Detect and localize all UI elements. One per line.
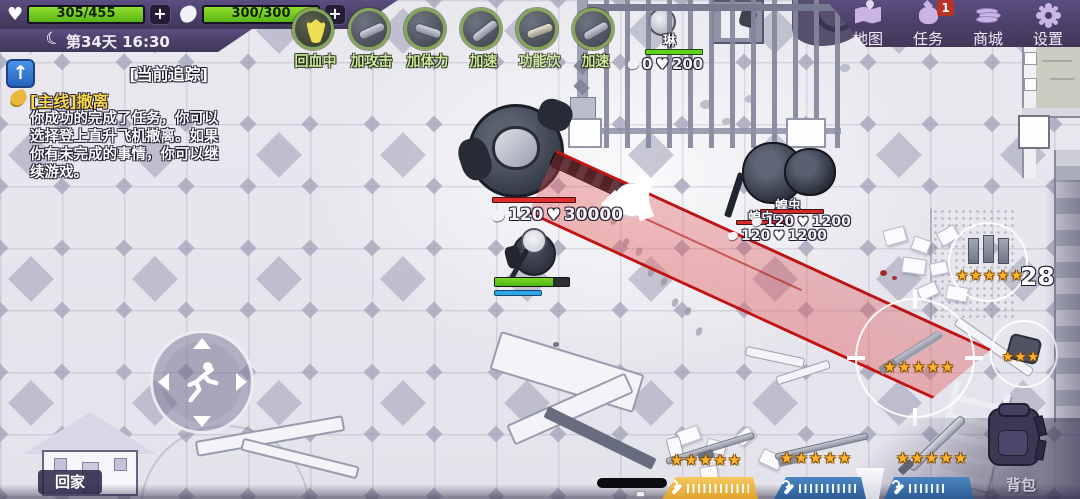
repair-wrench-icon [670,481,683,495]
attack-icon [727,231,739,241]
durability-ticks [799,484,859,493]
pickup-rifle-stars: ★★★★★ [883,358,955,376]
heart-icon: ♥ [773,230,785,243]
blood-splat [892,276,897,280]
menu-label: 任务 [900,28,956,49]
health-bar: 305/455 [27,5,145,24]
house-window [114,458,127,471]
blood-splat [880,270,887,276]
attack-icon [751,217,763,227]
home-label: 回家 [55,473,85,491]
buff-art [357,21,387,42]
top-menu: 地图 1 任务 商城 设置 [840,2,1076,49]
enemy-unit [784,148,836,196]
player-stamina-bar [494,290,542,296]
day-time-label: 第34天 16:30 [66,31,170,52]
menu-label: 设置 [1020,28,1076,49]
buff-art [525,22,555,41]
durability-ticks [909,484,945,493]
run-icon [180,359,226,405]
hotbar: ★★★★★ ★★★★★ ★★★★★ [590,415,990,499]
slot2-durability-bar [774,477,866,499]
speed-buff-icon [460,8,502,50]
heart-icon: ♥ [797,216,809,229]
slot1-durability-bar [662,477,758,499]
joystick-right-arrow [236,373,247,391]
repair-wrench-icon [892,481,905,495]
buff-label: 回血中 [292,51,339,71]
attack-buff-icon [348,8,390,50]
buff-art [470,18,500,44]
buff-label: 加体力 [404,51,451,71]
buff-heal[interactable]: 回血中 [292,8,339,71]
tasks-badge: 1 [937,0,954,16]
wall-box [1024,78,1037,91]
backpack-pocket [998,430,1028,456]
ammo-cylinder [983,235,994,263]
weapon-slot-1[interactable]: ★★★★★ [650,415,760,499]
quest-header: [当前追踪] [80,61,208,85]
quest-collapse-button[interactable]: ↑ [6,59,35,88]
player-hp-fill [495,278,553,286]
buff-bar: 回血中 加攻击 加体力 加速 功能饮 加速 [292,8,619,71]
settings-gear-icon [1040,7,1057,24]
buff-attack[interactable]: 加攻击 [348,8,395,71]
house-roof [24,412,156,454]
buff-speed-2[interactable]: 加速 [572,8,619,71]
durability-ticks [687,484,749,493]
backpack-flap [998,403,1030,417]
menu-shop[interactable]: 商城 [960,2,1016,49]
joystick-up-arrow [193,338,211,349]
joystick-down-arrow [193,416,211,427]
health-heart-icon: ♥ [7,4,23,25]
menu-settings[interactable]: 设置 [1020,2,1076,49]
slot3-stars: ★★★★★ [896,449,968,467]
menu-label: 地图 [840,28,896,49]
joystick-left-arrow [158,373,169,391]
repair-wrench-icon [782,481,795,495]
npc-name: 琳 [663,30,676,49]
fence-top-rail [583,4,841,11]
attack-icon [627,58,640,69]
enemy-stats: 120 ♥1200 [728,228,827,244]
buff-art [306,19,326,43]
paper [901,256,927,275]
backpack-strap [1034,439,1046,460]
heart-icon: ♥ [655,57,668,72]
quest-title: [主线]撤离 [30,88,109,112]
add-health-button[interactable]: + [149,4,171,25]
speed-buff-icon [572,8,614,50]
buff-speed[interactable]: 加速 [460,8,507,71]
buff-label: 加攻击 [348,51,395,71]
backpack-icon [988,408,1040,466]
backpack-label: 背包 [1006,474,1036,495]
wall-box [1024,52,1037,65]
buff-stamina[interactable]: 加体力 [404,8,451,71]
pickup-vest-stars: ★★★ [1002,350,1040,365]
map-icon [855,7,881,24]
slot3-durability-bar [884,477,974,499]
boss-stats: 120 ♥30000 [492,205,623,225]
weapon-slot-3[interactable]: ★★★★★ [882,415,982,499]
heal-buff-icon [292,8,334,50]
ammo-cylinder [968,238,979,264]
reticle-tick [913,290,917,308]
backpack-button[interactable] [986,400,1050,470]
reticle-tick [965,356,983,360]
home-button[interactable]: 回家 [38,470,102,494]
buff-label: 加速 [572,51,619,71]
boss-core [492,126,540,170]
menu-tasks[interactable]: 1 任务 [900,2,956,49]
player-unit [506,224,572,282]
movement-joystick[interactable] [150,330,254,434]
slot1-stars: ★★★★★ [670,451,742,469]
room-line [1050,78,1074,80]
buff-drink[interactable]: 功能饮 [516,8,563,71]
heart-icon: ♥ [547,207,561,223]
attack-icon [491,208,506,222]
up-arrow-icon: ↑ [13,62,29,84]
buff-art [413,22,443,40]
pickup-ammo[interactable] [948,222,1028,302]
slot2-stars: ★★★★★ [780,449,852,467]
buff-label: 加速 [460,51,507,71]
backpack-strap [1034,415,1048,437]
stamina-buff-icon [404,8,446,50]
wall-big-box [1018,115,1050,149]
weapon-slot-2[interactable]: ★★★★★ [762,415,868,499]
drink-buff-icon [516,8,558,50]
buff-label: 功能饮 [516,51,563,71]
explosion-puff [635,202,654,221]
ammo-cylinder [998,238,1009,264]
game-screen: 琳 0 ♥200 120 ♥30000 蝗虫 蝗虫 120 ♥1200 120 … [0,0,1080,499]
npc-stats: 0 ♥200 [628,55,703,73]
buff-art [581,20,610,43]
fence-footing-right [786,118,826,148]
boss-hp-bar [492,197,576,203]
reticle-tick [847,356,865,360]
room-line [1042,60,1072,62]
pickup-ammo-stars: ★★★★★ [956,268,1024,284]
menu-map[interactable]: 地图 [840,2,896,49]
right-room [1036,46,1080,110]
player-hp-track [494,277,570,287]
quest-body: 你成功的完成了任务，你可以选择登上直升飞机撤离。如果你有未完成的事情，你可以继续… [30,110,228,182]
menu-label: 商城 [960,28,1016,49]
shop-coins-icon [976,8,1001,23]
